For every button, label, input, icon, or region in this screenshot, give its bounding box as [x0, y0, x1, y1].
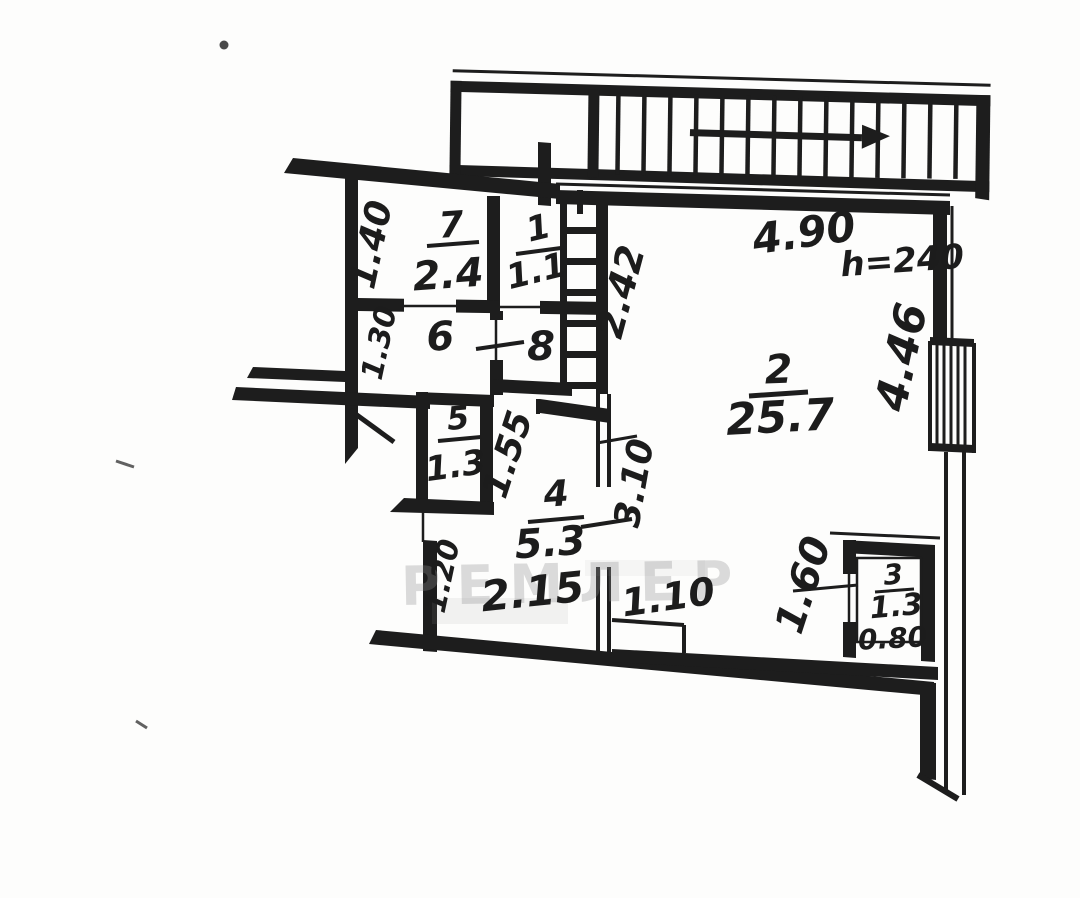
bottom-right-wall — [920, 682, 936, 780]
stair-tread — [903, 97, 904, 178]
staircase-right-wall — [975, 95, 990, 200]
room4-area: 5.3 — [513, 518, 587, 569]
room3-number: 3 — [882, 557, 904, 592]
stair-tread — [929, 98, 930, 179]
scanned-floor-plan-page: РЕМЛЕР 7 2.4 1 1.1 6 8 2 25.7 5 1.3 4 5.… — [0, 0, 1080, 898]
room2-number: 2 — [764, 347, 793, 394]
dim-closet-width: 0.80 — [857, 620, 928, 657]
stair-tread — [643, 94, 644, 175]
staircase-left-wall — [449, 81, 461, 176]
room8-number: 8 — [527, 324, 555, 370]
stair-tread — [669, 94, 670, 175]
stair-landing-divider — [587, 89, 599, 177]
room7-number: 7 — [437, 204, 465, 247]
wall-room7-room1 — [487, 196, 500, 306]
room2-area: 25.7 — [725, 389, 836, 446]
stair-tread — [617, 94, 618, 175]
paper-background — [0, 0, 1080, 898]
room4-number: 4 — [541, 473, 570, 516]
stair-tread — [955, 98, 956, 179]
west-outer-wall — [345, 164, 358, 464]
room5-number: 5 — [445, 398, 470, 438]
room7-area: 2.4 — [411, 250, 485, 301]
room6-number: 6 — [425, 313, 455, 360]
floor-plan-drawing: РЕМЛЕР 7 2.4 1 1.1 6 8 2 25.7 5 1.3 4 5.… — [0, 0, 1080, 898]
scan-artifact-dot — [220, 41, 229, 50]
